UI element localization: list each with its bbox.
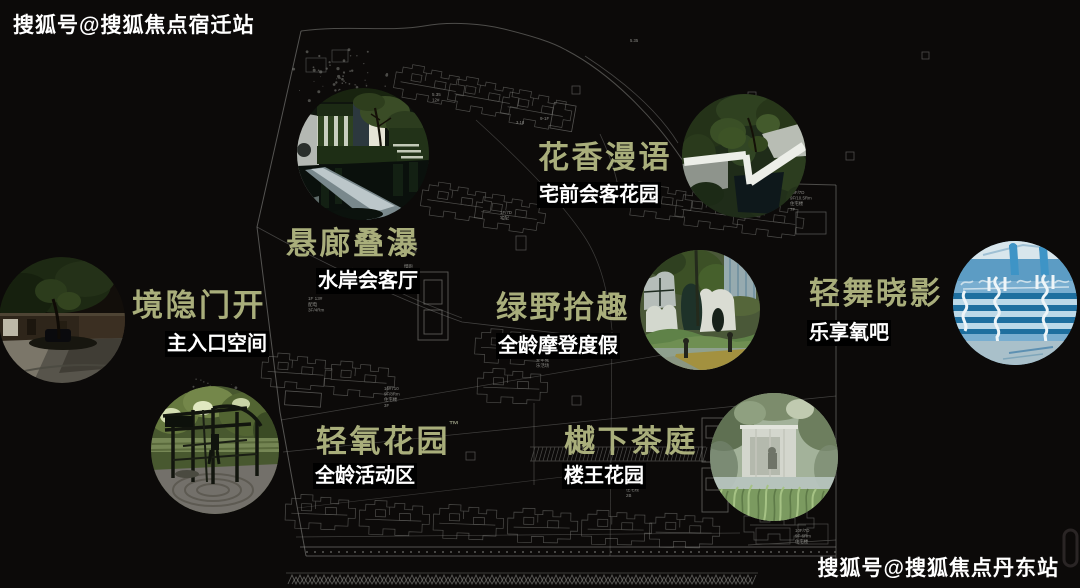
svg-text:2B: 2B <box>626 493 631 498</box>
svg-text:5.35: 5.35 <box>432 92 441 97</box>
svg-text:9-1F: 9-1F <box>540 116 550 121</box>
svg-text:3F/4Rm: 3F/4Rm <box>308 308 325 313</box>
svg-text:9F/8Rm: 9F/8Rm <box>384 392 400 397</box>
svg-text:16#710: 16#710 <box>384 386 399 391</box>
svg-text:9F-6Rm: 9F-6Rm <box>795 534 811 539</box>
svg-text:1F 13#: 1F 13# <box>308 296 323 301</box>
svg-text:5.35: 5.35 <box>630 38 639 43</box>
svg-text:乐活场: 乐活场 <box>536 362 550 369</box>
svg-text:10F/7D: 10F/7D <box>795 528 809 533</box>
svg-text:3.18: 3.18 <box>516 120 525 125</box>
svg-text:3F: 3F <box>384 403 389 408</box>
svg-text:宅配: 宅配 <box>500 215 509 222</box>
svg-text:1F/7D: 1F/7D <box>500 210 512 215</box>
svg-text:12#: 12# <box>432 98 440 103</box>
